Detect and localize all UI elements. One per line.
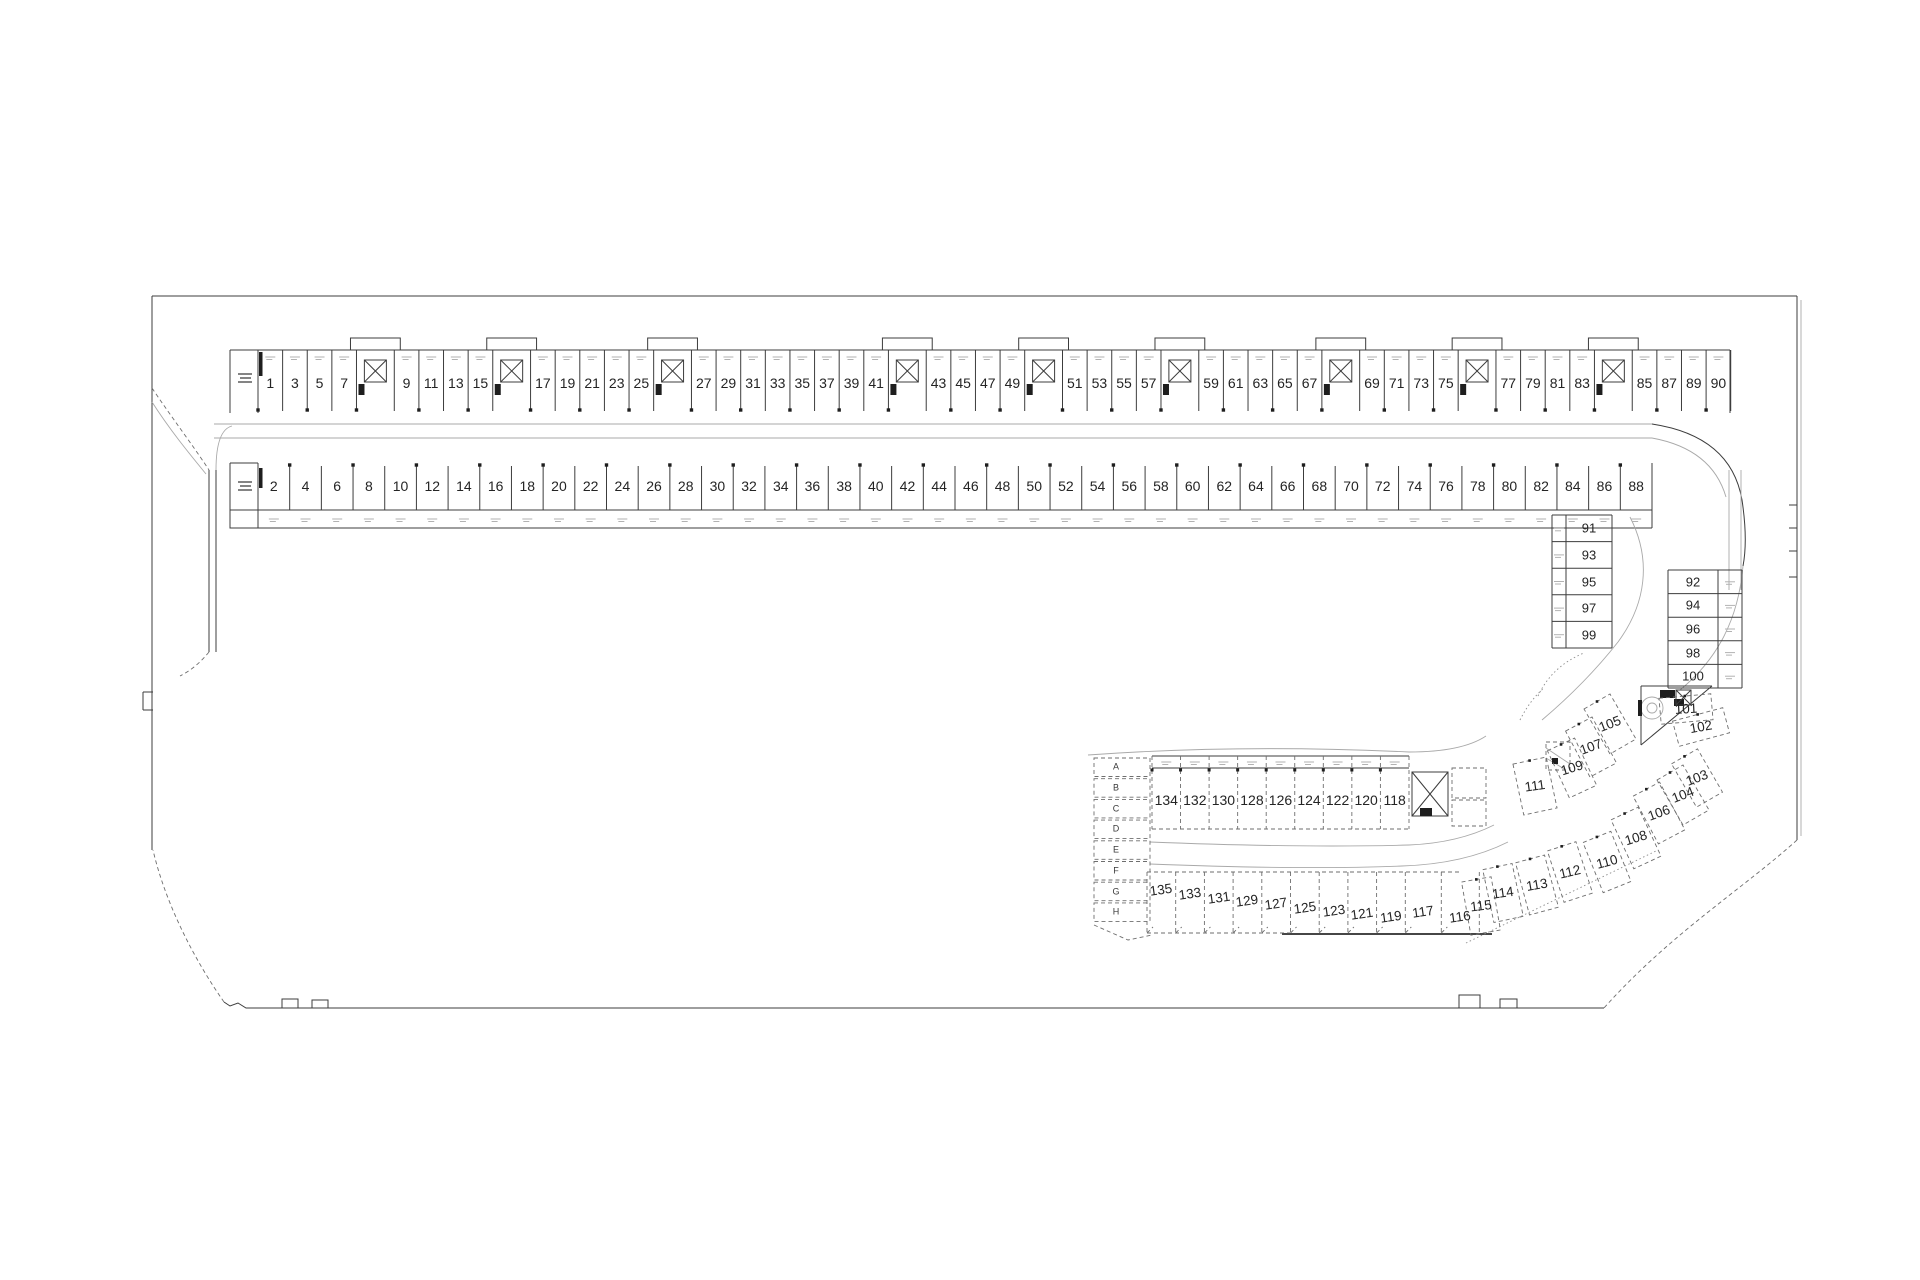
parking-stall-number: 101 [1674,702,1697,717]
parking-stall-number: 118 [1384,793,1406,807]
parking-stall-number: 104 [1670,785,1696,806]
parking-stall-number: 74 [1407,479,1423,493]
parking-stall-number: 83 [1574,376,1590,390]
parking-stall-number: 47 [980,376,996,390]
storage-room-letter: D [1113,825,1120,834]
parking-stall-number: 126 [1269,793,1292,807]
parking-stall-number: 66 [1280,479,1296,493]
parking-stall-number: 82 [1533,479,1549,493]
parking-stall-number: 110 [1595,853,1619,872]
parking-stall-number: 39 [844,376,860,390]
parking-stall-number: 2 [270,479,278,493]
parking-stall-number: 22 [583,479,599,493]
parking-stall-number: 37 [819,376,835,390]
parking-stall-number: 85 [1637,376,1653,390]
storage-room-letter: C [1113,804,1120,813]
parking-stall-number: 11 [424,376,439,390]
parking-stall-number: 73 [1413,376,1429,390]
parking-stall-number: 112 [1558,863,1582,881]
parking-stall-number: 97 [1582,602,1596,615]
parking-stall-number: 29 [721,376,737,390]
parking-stall-number: 96 [1686,623,1700,636]
parking-stall-number: 36 [805,479,821,493]
parking-stall-number: 40 [868,479,884,493]
parking-stall-number: 70 [1343,479,1359,493]
parking-stall-number: 68 [1312,479,1328,493]
parking-stall-number: 7 [340,376,348,390]
parking-stall-number: 79 [1525,376,1541,390]
storage-room-letter: E [1113,846,1119,855]
floor-plan-canvas: 1357911131517192123252729313335373941434… [0,0,1920,1280]
parking-stall-number: 13 [448,376,464,390]
parking-stall-number: 75 [1438,376,1454,390]
storage-room-letter: F [1113,866,1119,875]
parking-stall-number: 91 [1582,522,1596,535]
parking-stall-number: 3 [291,376,299,390]
parking-stall-number: 121 [1350,906,1374,923]
parking-stall-number: 107 [1578,737,1604,757]
parking-stall-number: 54 [1090,479,1106,493]
parking-stall-number: 103 [1684,768,1710,789]
parking-stall-number: 122 [1326,793,1349,807]
parking-stall-number: 14 [456,479,472,493]
parking-stall-number: 105 [1597,714,1623,735]
parking-stall-number: 87 [1661,376,1677,390]
parking-stall-number: 127 [1264,896,1288,913]
parking-stall-number: 6 [333,479,341,493]
parking-stall-number: 76 [1438,479,1454,493]
parking-stall-number: 23 [609,376,625,390]
storage-room-letter: H [1113,908,1120,917]
parking-stall-number: 86 [1597,479,1613,493]
parking-stall-number: 134 [1155,793,1178,807]
parking-stall-number: 111 [1524,778,1546,794]
stall-labels-layer: 1357911131517192123252729313335373941434… [0,0,1920,1280]
parking-stall-number: 41 [868,376,884,390]
parking-stall-number: 100 [1682,670,1704,683]
parking-stall-number: 108 [1623,828,1648,847]
parking-stall-number: 67 [1302,376,1318,390]
parking-stall-number: 131 [1207,890,1231,907]
parking-stall-number: 56 [1121,479,1137,493]
parking-stall-number: 80 [1502,479,1518,493]
parking-stall-number: 71 [1389,376,1405,390]
parking-stall-number: 98 [1686,646,1700,659]
parking-stall-number: 109 [1559,758,1584,777]
parking-stall-number: 84 [1565,479,1581,493]
parking-stall-number: 21 [584,376,600,390]
parking-stall-number: 18 [519,479,535,493]
parking-stall-number: 123 [1321,903,1345,920]
parking-stall-number: 132 [1183,793,1206,807]
parking-stall-number: 15 [473,376,489,390]
parking-stall-number: 89 [1686,376,1702,390]
parking-stall-number: 48 [995,479,1011,493]
parking-stall-number: 130 [1212,793,1235,807]
storage-room-letter: G [1112,887,1119,896]
parking-stall-number: 90 [1711,376,1727,390]
parking-stall-number: 119 [1379,909,1402,925]
parking-stall-number: 64 [1248,479,1264,493]
parking-stall-number: 95 [1582,575,1596,588]
parking-stall-number: 50 [1026,479,1042,493]
storage-room-letter: B [1113,784,1119,793]
storage-room-letter: A [1113,763,1119,772]
parking-stall-number: 19 [560,376,576,390]
parking-stall-number: 59 [1203,376,1219,390]
parking-stall-number: 63 [1253,376,1269,390]
parking-stall-number: 116 [1449,909,1472,925]
parking-stall-number: 4 [302,479,310,493]
parking-stall-number: 1 [266,376,274,390]
parking-stall-number: 10 [393,479,409,493]
parking-stall-number: 25 [634,376,650,390]
parking-stall-number: 99 [1582,628,1596,641]
parking-stall-number: 93 [1582,548,1596,561]
parking-stall-number: 28 [678,479,694,493]
parking-stall-number: 5 [316,376,324,390]
parking-stall-number: 55 [1116,376,1132,390]
parking-stall-number: 34 [773,479,789,493]
parking-stall-number: 53 [1092,376,1108,390]
parking-stall-number: 133 [1178,886,1202,903]
parking-stall-number: 26 [646,479,662,493]
parking-stall-number: 33 [770,376,786,390]
parking-stall-number: 12 [424,479,440,493]
parking-stall-number: 65 [1277,376,1293,390]
parking-stall-number: 35 [794,376,810,390]
parking-stall-number: 135 [1149,882,1173,899]
parking-stall-number: 81 [1550,376,1566,390]
parking-stall-number: 69 [1364,376,1380,390]
parking-stall-number: 45 [955,376,971,390]
parking-stall-number: 124 [1297,793,1320,807]
parking-stall-number: 78 [1470,479,1486,493]
parking-stall-number: 38 [836,479,852,493]
parking-stall-number: 128 [1240,793,1263,807]
parking-stall-number: 8 [365,479,373,493]
parking-stall-number: 102 [1689,718,1714,735]
parking-stall-number: 115 [1469,898,1492,914]
parking-stall-number: 60 [1185,479,1201,493]
parking-stall-number: 88 [1628,479,1644,493]
parking-stall-number: 62 [1216,479,1232,493]
parking-stall-number: 113 [1525,876,1549,893]
parking-stall-number: 31 [745,376,761,390]
parking-stall-number: 94 [1686,599,1700,612]
parking-stall-number: 61 [1228,376,1244,390]
parking-stall-number: 24 [615,479,631,493]
parking-stall-number: 27 [696,376,712,390]
parking-stall-number: 9 [403,376,411,390]
parking-stall-number: 58 [1153,479,1169,493]
parking-stall-number: 114 [1491,885,1514,901]
parking-stall-number: 51 [1067,376,1083,390]
parking-stall-number: 57 [1141,376,1157,390]
parking-stall-number: 44 [931,479,947,493]
parking-stall-number: 43 [931,376,947,390]
parking-stall-number: 46 [963,479,979,493]
parking-stall-number: 20 [551,479,567,493]
parking-stall-number: 120 [1354,793,1377,807]
parking-stall-number: 72 [1375,479,1391,493]
parking-stall-number: 129 [1235,893,1259,910]
parking-stall-number: 17 [535,376,551,390]
parking-stall-number: 125 [1293,900,1317,917]
parking-stall-number: 117 [1412,904,1435,920]
parking-stall-number: 30 [710,479,726,493]
parking-stall-number: 92 [1686,575,1700,588]
parking-stall-number: 32 [741,479,757,493]
parking-stall-number: 49 [1005,376,1021,390]
parking-stall-number: 77 [1500,376,1516,390]
parking-stall-number: 42 [900,479,916,493]
parking-stall-number: 16 [488,479,504,493]
parking-stall-number: 52 [1058,479,1074,493]
parking-stall-number: 106 [1646,803,1672,823]
